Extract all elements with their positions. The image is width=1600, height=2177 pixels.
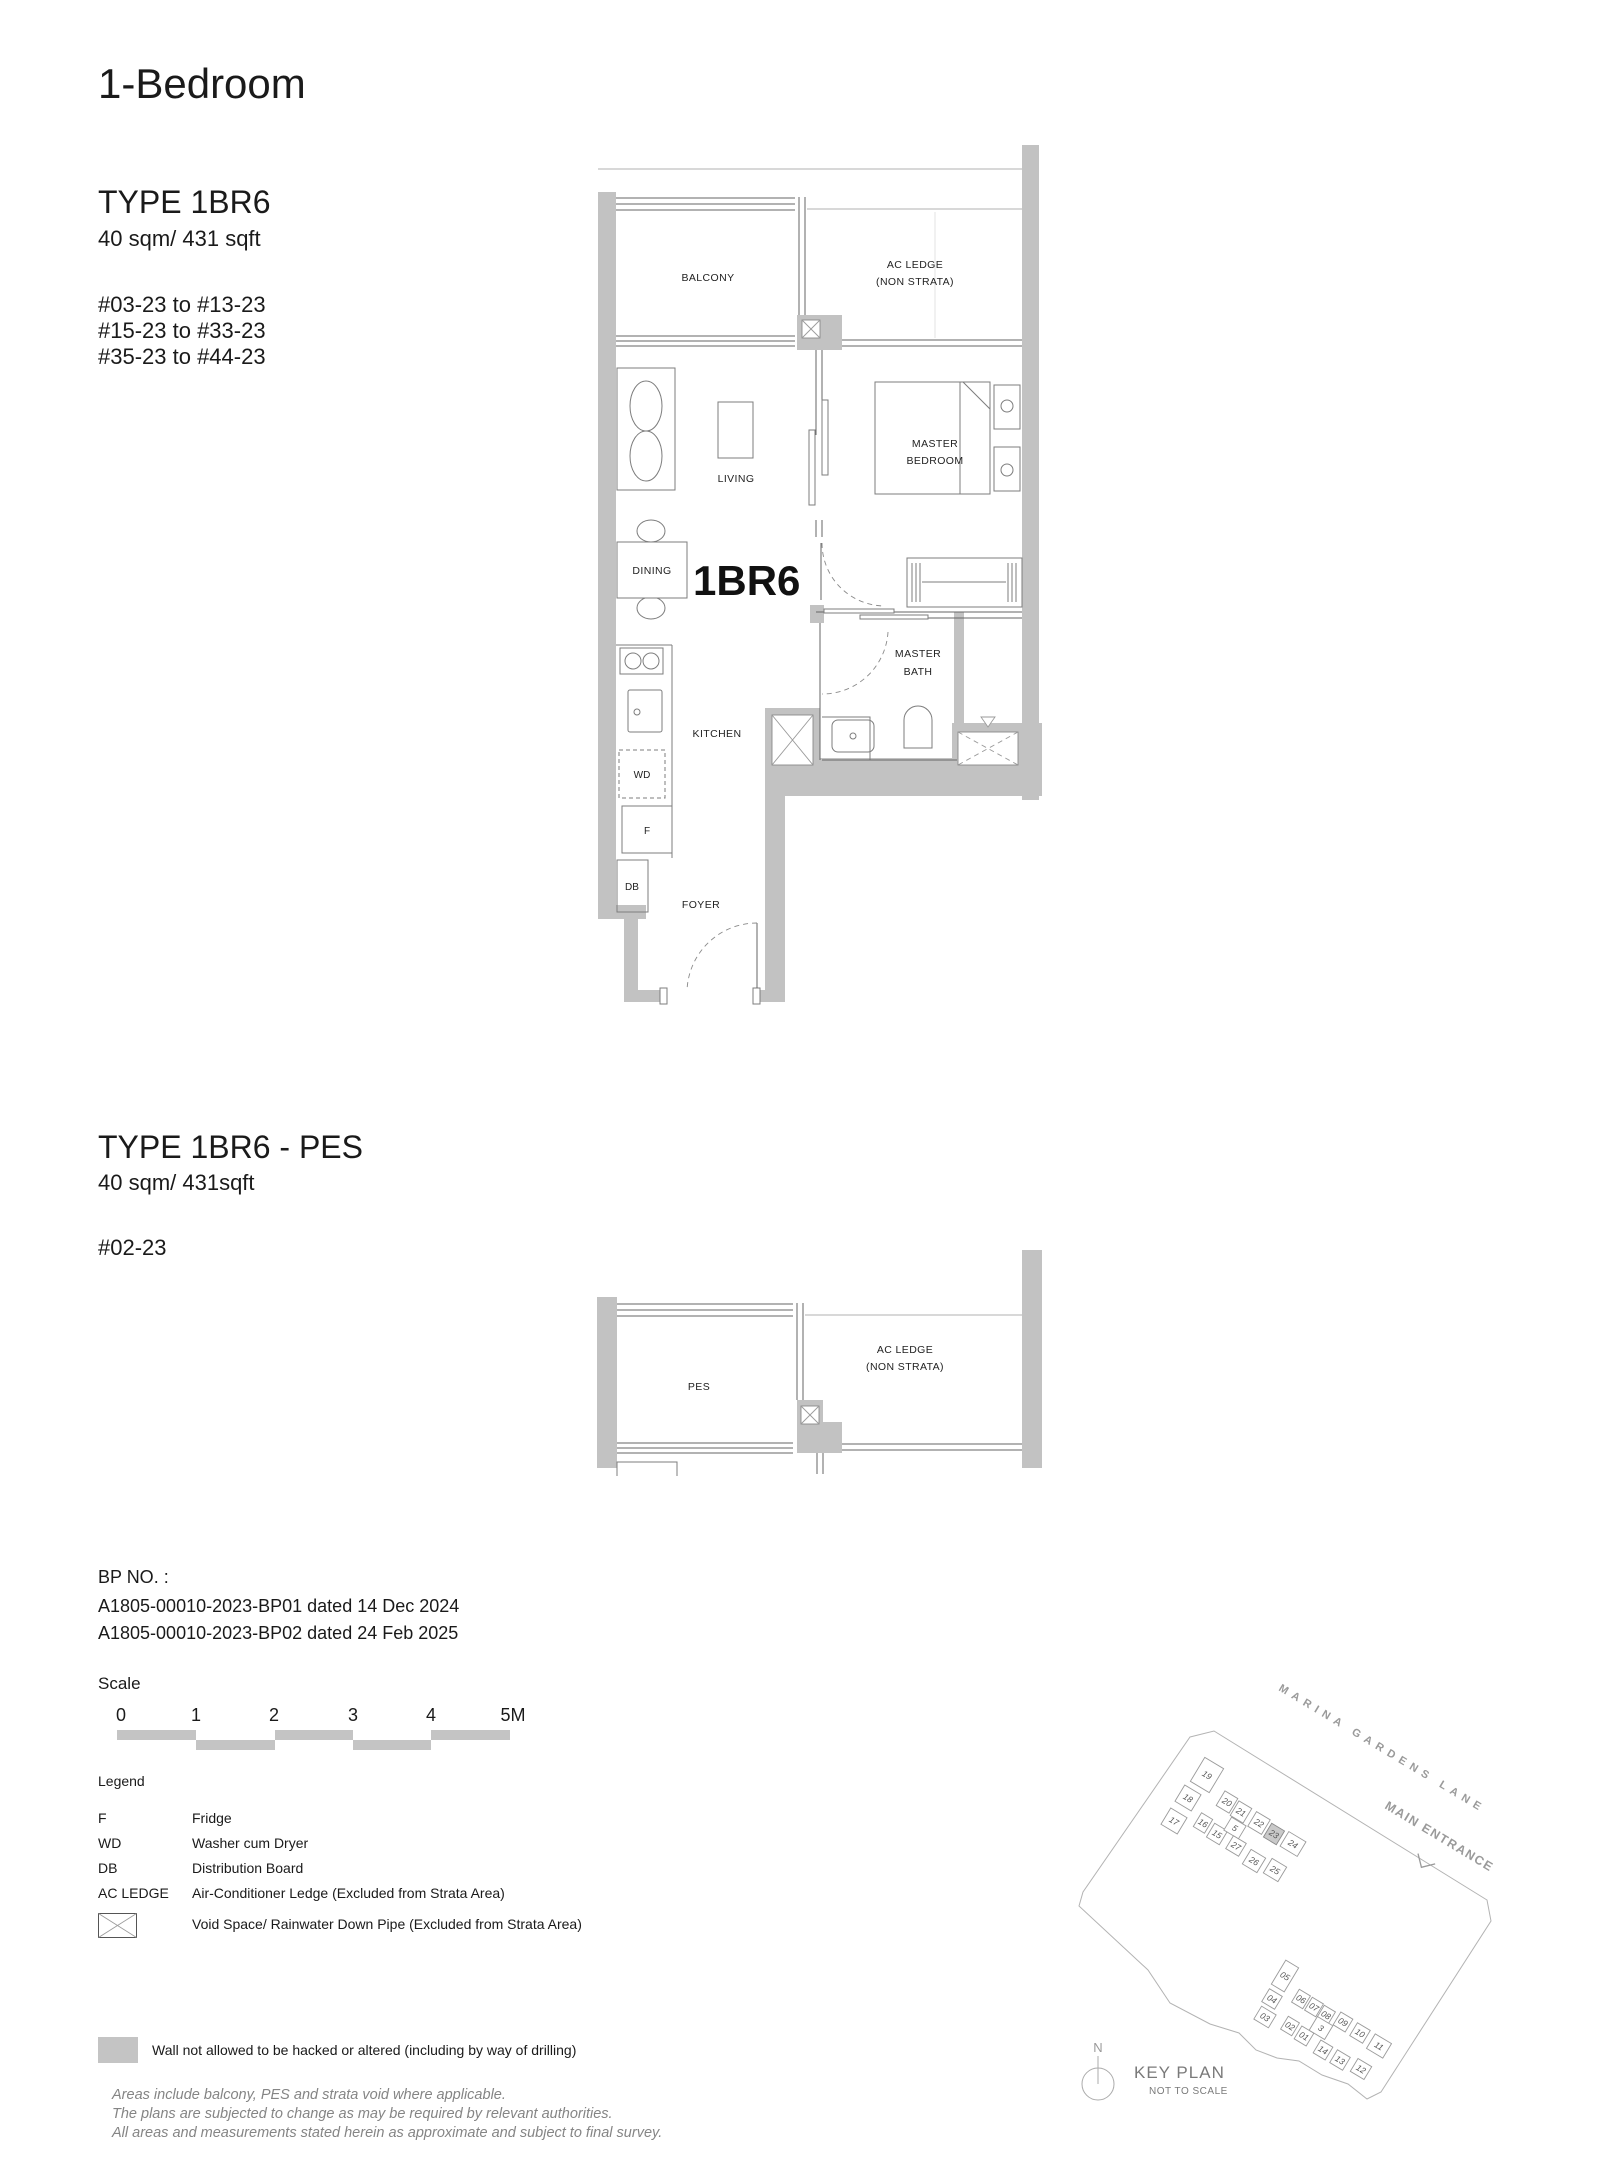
bath-sink (832, 720, 874, 752)
scale-segment (117, 1730, 196, 1740)
room-label-master-bedroom: MASTER (912, 438, 958, 450)
room-label-pes: PES (688, 1381, 710, 1393)
svg-text:N: N (1093, 2040, 1102, 2055)
plan1-type-label: TYPE 1BR6 (98, 184, 271, 221)
plan1-area: 40 sqm/ 431 sqft (98, 226, 261, 252)
legend-desc: Air-Conditioner Ledge (Excluded from Str… (192, 1885, 505, 1901)
room-label-dining: DINING (632, 565, 671, 577)
kitchen-sink (628, 690, 662, 732)
scale-tick: 5M (500, 1705, 525, 1726)
keyplan-title: KEY PLAN (1134, 2063, 1225, 2082)
room-label-master-bath-2: BATH (904, 666, 933, 678)
scale-segment (196, 1740, 275, 1750)
scale-segment (353, 1740, 431, 1750)
legend-desc: Washer cum Dryer (192, 1835, 308, 1851)
scale-tick: 4 (426, 1705, 436, 1726)
floorplan-1br6: BALCONY AC LEDGE (NON STRATA) LIVING MAS… (560, 100, 1060, 1050)
site-boundary (1079, 1731, 1491, 2099)
wall-swatch-icon (98, 2037, 138, 2063)
plan2-type-label: TYPE 1BR6 - PES (98, 1129, 363, 1166)
scale-tick: 1 (191, 1705, 201, 1726)
room-label-balcony: BALCONY (682, 272, 735, 284)
blanket-fold (963, 382, 990, 409)
floorplan-brochure-page: { "page": { "title": "1-Bedroom" }, "pla… (0, 0, 1600, 2177)
disclaimer-line: The plans are subjected to change as may… (112, 2105, 662, 2124)
disclaimer: Areas include balcony, PES and strata vo… (112, 2086, 662, 2143)
room-label-master-bedroom-2: BEDROOM (906, 455, 963, 467)
scale-bar: 0 1 2 3 4 5M (117, 1705, 527, 1751)
tv-console (718, 402, 753, 458)
legend-desc: Void Space/ Rainwater Down Pipe (Exclude… (192, 1916, 582, 1932)
scale-tick: 2 (269, 1705, 279, 1726)
nightstand (994, 447, 1020, 491)
sofa (617, 368, 675, 490)
floorplan-1br6-pes: PES AC LEDGE (NON STRATA) (560, 1200, 1060, 1510)
bp-line: A1805-00010-2023-BP01 dated 14 Dec 2024 (98, 1593, 459, 1620)
plan2-void (801, 1406, 819, 1424)
room-label-kitchen: KITCHEN (693, 728, 742, 740)
key-plan: MARINA GARDENS LANE MAIN ENTRANCE 19 18 … (1050, 1620, 1600, 2177)
disclaimer-line: All areas and measurements stated herein… (112, 2124, 662, 2143)
plan2-labels: PES AC LEDGE (NON STRATA) (688, 1344, 944, 1393)
bp-no-lines: A1805-00010-2023-BP01 dated 14 Dec 2024 … (98, 1593, 459, 1647)
room-label-ac-ledge-2: (NON STRATA) (866, 1361, 944, 1373)
legend-abbr: AC LEDGE (98, 1885, 169, 1901)
room-label-living: LIVING (718, 473, 755, 485)
room-label-ac-ledge: AC LEDGE (887, 259, 943, 271)
scale-tick: 0 (116, 1705, 126, 1726)
unit-type-tag: 1BR6 (693, 557, 800, 604)
plan2-walls (597, 1250, 1042, 1468)
room-label-ac-ledge-2: (NON STRATA) (876, 276, 954, 288)
dining-chair (637, 520, 665, 542)
wall-note: Wall not allowed to be hacked or altered… (152, 2042, 576, 2058)
legend-title: Legend (98, 1773, 145, 1789)
keyplan-lower-units: 05 04 03 06 07 08 09 02 01 3 10 11 14 13… (1254, 1960, 1392, 2079)
scale-tick: 3 (348, 1705, 358, 1726)
scale-segment (275, 1730, 353, 1740)
disclaimer-line: Areas include balcony, PES and strata vo… (112, 2086, 662, 2105)
toilet (904, 706, 932, 748)
unit-range: #03-23 to #13-23 (98, 292, 266, 318)
keyplan-subtitle: NOT TO SCALE (1149, 2086, 1228, 2097)
plan2-unit-range: #02-23 (98, 1235, 167, 1261)
room-label-foyer: FOYER (682, 899, 720, 911)
room-label-wd: WD (634, 770, 651, 781)
legend-desc: Distribution Board (192, 1860, 303, 1876)
scale-segment (431, 1730, 510, 1740)
bp-line: A1805-00010-2023-BP02 dated 24 Feb 2025 (98, 1620, 459, 1647)
plan1-unit-ranges: #03-23 to #13-23 #15-23 to #33-23 #35-23… (98, 292, 266, 370)
street-label: MARINA GARDENS LANE (1276, 1682, 1487, 1815)
nightstand (994, 385, 1020, 429)
legend-abbr: F (98, 1810, 107, 1826)
scale-label: Scale (98, 1674, 141, 1694)
keyplan-upper-units: 19 18 17 20 21 22 23 24 16 15 5 27 26 25 (1161, 1757, 1306, 1881)
legend-desc: Fridge (192, 1810, 232, 1826)
room-label-master-bath: MASTER (895, 648, 941, 660)
legend-abbr: WD (98, 1835, 121, 1851)
unit-range: #15-23 to #33-23 (98, 318, 266, 344)
page-title: 1-Bedroom (98, 60, 306, 108)
dining-chair (637, 597, 665, 619)
room-label-ac-ledge: AC LEDGE (877, 1344, 933, 1356)
unit-range: #35-23 to #44-23 (98, 344, 266, 370)
north-compass-icon: N (1082, 2040, 1114, 2100)
bp-no-label: BP NO. : (98, 1564, 169, 1591)
svg-text:MARINA GARDENS LANE: MARINA GARDENS LANE (1276, 1682, 1487, 1815)
void-space-icon (98, 1913, 137, 1938)
room-label-fridge: F (644, 826, 650, 837)
room-label-db: DB (625, 882, 639, 893)
plan2-area: 40 sqm/ 431sqft (98, 1170, 255, 1196)
legend-abbr: DB (98, 1860, 117, 1876)
legend-list: F Fridge WD Washer cum Dryer DB Distribu… (98, 1810, 658, 1940)
